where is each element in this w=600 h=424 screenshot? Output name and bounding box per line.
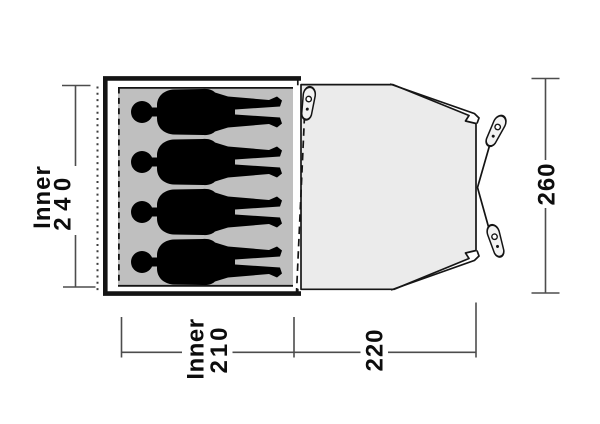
porch-width-value: 220 — [362, 328, 389, 371]
inner-width-value: 210 — [206, 324, 233, 373]
background — [0, 0, 600, 424]
tent-floorplan-diagram: Inner 240 260 Inner 210 220 — [0, 0, 600, 424]
inner-depth-value: 240 — [50, 171, 77, 231]
porch-area — [298, 78, 479, 295]
outer-depth-value: 260 — [534, 162, 561, 205]
floorplan-canvas: Inner 240 260 Inner 210 220 — [0, 0, 600, 424]
